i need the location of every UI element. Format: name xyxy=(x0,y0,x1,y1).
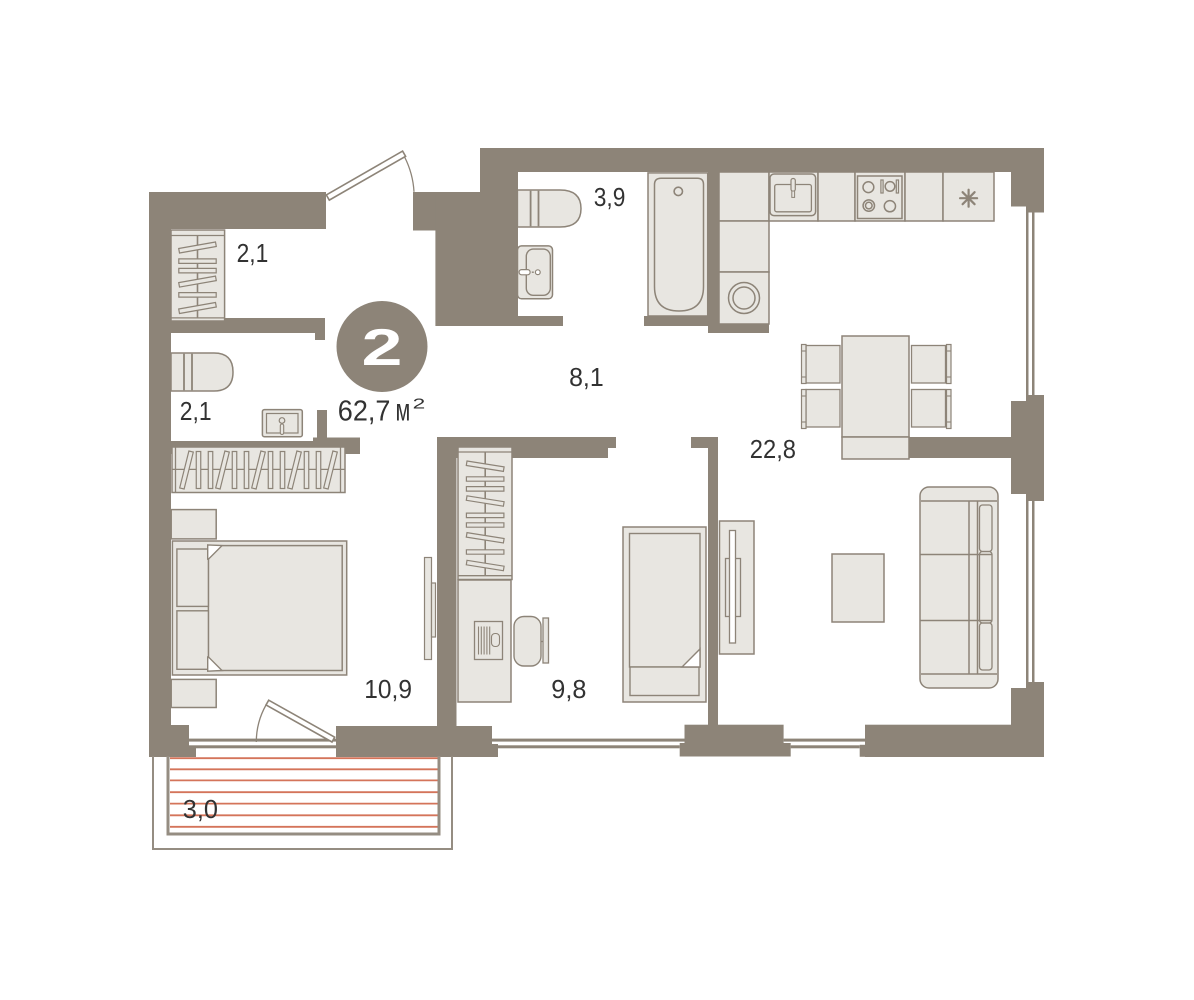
svg-text:2,1: 2,1 xyxy=(237,238,269,268)
svg-text:8,1: 8,1 xyxy=(569,362,604,392)
svg-text:2,1: 2,1 xyxy=(180,396,212,426)
svg-text:2: 2 xyxy=(413,396,426,413)
svg-text:м: м xyxy=(396,392,411,428)
svg-text:3,9: 3,9 xyxy=(594,182,626,212)
svg-text:2: 2 xyxy=(362,319,403,377)
svg-text:62,7: 62,7 xyxy=(338,396,391,428)
svg-text:9,8: 9,8 xyxy=(551,674,586,704)
svg-text:22,8: 22,8 xyxy=(750,434,796,464)
svg-text:10,9: 10,9 xyxy=(364,674,412,704)
svg-text:3,0: 3,0 xyxy=(183,794,218,824)
